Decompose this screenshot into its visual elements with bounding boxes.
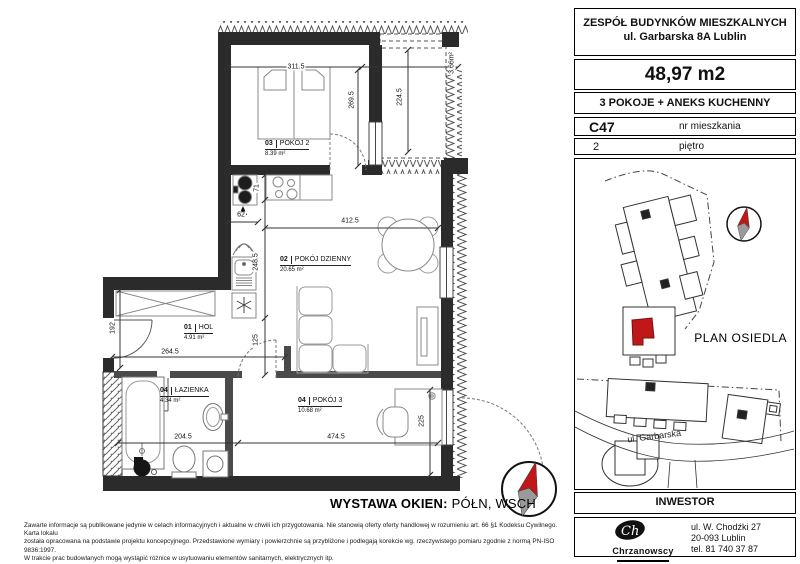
floor-label: piętro bbox=[679, 141, 704, 152]
apartment-number-label: nr mieszkania bbox=[679, 121, 741, 132]
dim-lazienka-width: 204.5 bbox=[173, 434, 193, 441]
disclaimer-line: Zawarte informacje są publikowane jedyni… bbox=[24, 522, 572, 538]
room-name: POKÓJ DZIENNY bbox=[295, 256, 351, 264]
project-address: ul. Garbarska 8A Lublin bbox=[575, 30, 795, 44]
investor-company-name: Chrzanowscy bbox=[612, 546, 673, 557]
investor-box: Ch Chrzanowscy ul. W. Chodźki 27 20-093 … bbox=[574, 517, 796, 557]
floor-number: 2 bbox=[593, 141, 599, 153]
room-number: 04 bbox=[298, 397, 310, 405]
disclaimer-line: W trakcie prac budowlanych mogą wystąpić… bbox=[24, 555, 572, 563]
exposure-label: WYSTAWA OKIEN: bbox=[330, 496, 448, 511]
investor-logo: Ch Chrzanowscy bbox=[608, 519, 678, 562]
layout-type-box: 3 POKOJE + ANEKS KUCHENNY bbox=[574, 92, 796, 114]
building-right bbox=[722, 394, 781, 445]
dim-kuchnia-depth: 248.5 bbox=[253, 252, 260, 272]
room-number: 01 bbox=[184, 324, 196, 332]
svg-text:Ch: Ch bbox=[621, 524, 639, 539]
dim-salon-left-depth: 125 bbox=[253, 333, 260, 347]
exposure-value: PÓŁN, WSCH bbox=[452, 496, 536, 511]
room-name: POKÓJ 2 bbox=[280, 140, 310, 148]
apartment-number-box: C47 nr mieszkania bbox=[574, 117, 796, 136]
room-number: 03 bbox=[265, 140, 277, 148]
project-title-box: ZESPÓŁ BUDYNKÓW MIESZKALNYCH ul. Garbars… bbox=[574, 8, 796, 56]
party-wall-hatched bbox=[103, 372, 122, 476]
investor-address: ul. W. Chodźki 27 20-093 Lublin tel. 81 … bbox=[691, 522, 761, 555]
floor-plan-drawing bbox=[0, 0, 575, 564]
room-label-hol: 01HOL 4.91 m² bbox=[184, 324, 213, 342]
apartment-area: 48,97 m2 bbox=[645, 64, 725, 85]
room-area: 4.91 m² bbox=[184, 334, 213, 342]
dim-pokoj3-depth: 225 bbox=[419, 414, 426, 428]
disclaimer: Zawarte informacje są publikowane jedyni… bbox=[24, 522, 572, 563]
room-area: 8.39 m² bbox=[265, 150, 309, 158]
kitchen-counter bbox=[233, 175, 332, 215]
disclaimer-line: została opracowana na podstawie projektu… bbox=[24, 538, 572, 554]
apartment-card-page: 03POKÓJ 2 8.39 m² 02POKÓJ DZIENNY 20.65 … bbox=[0, 0, 800, 564]
dim-hol-width: 264.5 bbox=[160, 349, 180, 356]
room-label-pokoj3: 04POKÓJ 3 10.68 m² bbox=[298, 397, 342, 415]
dim-aneks-width: 62 bbox=[236, 212, 246, 219]
room-name: ŁAZIENKA bbox=[175, 387, 209, 395]
room-area: 20.65 m² bbox=[280, 266, 351, 274]
building-upper bbox=[608, 191, 718, 326]
site-plan-box: ul. Garbarska PLAN OSIEDLA bbox=[574, 158, 796, 490]
site-compass bbox=[727, 206, 761, 242]
info-panel: ZESPÓŁ BUDYNKÓW MIESZKALNYCH ul. Garbars… bbox=[574, 8, 796, 559]
bathtub bbox=[122, 377, 164, 469]
dim-aneks-counter: 71 bbox=[254, 183, 261, 193]
dim-salon-width: 412.5 bbox=[340, 218, 360, 225]
room-label-lazienka: 04ŁAZIENKA 4.34 m² bbox=[160, 387, 209, 405]
room-area: 4.34 m² bbox=[160, 397, 209, 405]
room-number: 04 bbox=[160, 387, 172, 395]
room-label-pokoj2: 03POKÓJ 2 8.39 m² bbox=[265, 140, 309, 158]
layout-type: 3 POKOJE + ANEKS KUCHENNY bbox=[599, 97, 770, 109]
dim-pokoj2-depth: 269.5 bbox=[349, 90, 356, 110]
corner-sofa bbox=[297, 286, 368, 373]
investor-phone: tel. 81 740 37 87 bbox=[691, 544, 761, 555]
floor-number-box: 2 piętro bbox=[574, 138, 796, 155]
dining-table bbox=[378, 217, 438, 273]
site-plan-drawing: ul. Garbarska bbox=[575, 159, 794, 488]
apartment-number: C47 bbox=[589, 119, 615, 135]
dim-hol-left: 192 bbox=[110, 321, 117, 335]
window-exposure-note: WYSTAWA OKIEN:PÓŁN, WSCH bbox=[330, 496, 536, 511]
apartment-area-box: 48,97 m2 bbox=[574, 59, 796, 90]
balcony bbox=[380, 34, 446, 158]
dim-balkon-area: 3.66m² bbox=[449, 51, 456, 75]
logo-tagline-bar bbox=[617, 560, 669, 562]
dim-balkon-depth: 224.5 bbox=[397, 87, 404, 107]
room-name: POKÓJ 3 bbox=[313, 397, 343, 405]
investor-address-line: ul. W. Chodźki 27 bbox=[691, 522, 761, 533]
dim-pokoj2-width: 311.5 bbox=[287, 64, 306, 71]
dim-pokoj3-width: 474.5 bbox=[326, 434, 346, 441]
room-number: 02 bbox=[280, 256, 292, 264]
project-title: ZESPÓŁ BUDYNKÓW MIESZKALNYCH bbox=[575, 16, 795, 30]
investor-address-line: 20-093 Lublin bbox=[691, 533, 761, 544]
fridge bbox=[232, 293, 256, 318]
tv-cabinet bbox=[417, 307, 438, 365]
investor-logo-mark: Ch bbox=[608, 519, 652, 541]
investor-title: INWESTOR bbox=[655, 496, 714, 508]
room-area: 10.68 m² bbox=[298, 407, 342, 415]
desk-and-chair bbox=[377, 389, 442, 445]
site-plan-title: PLAN OSIEDLA bbox=[694, 331, 787, 345]
building-lower bbox=[606, 378, 708, 431]
bed bbox=[258, 67, 330, 139]
wardrobe bbox=[116, 291, 215, 316]
investor-title-box: INWESTOR bbox=[574, 492, 796, 514]
room-name: HOL bbox=[199, 324, 213, 332]
room-label-pokoj-dzienny: 02POKÓJ DZIENNY 20.65 m² bbox=[280, 256, 351, 274]
